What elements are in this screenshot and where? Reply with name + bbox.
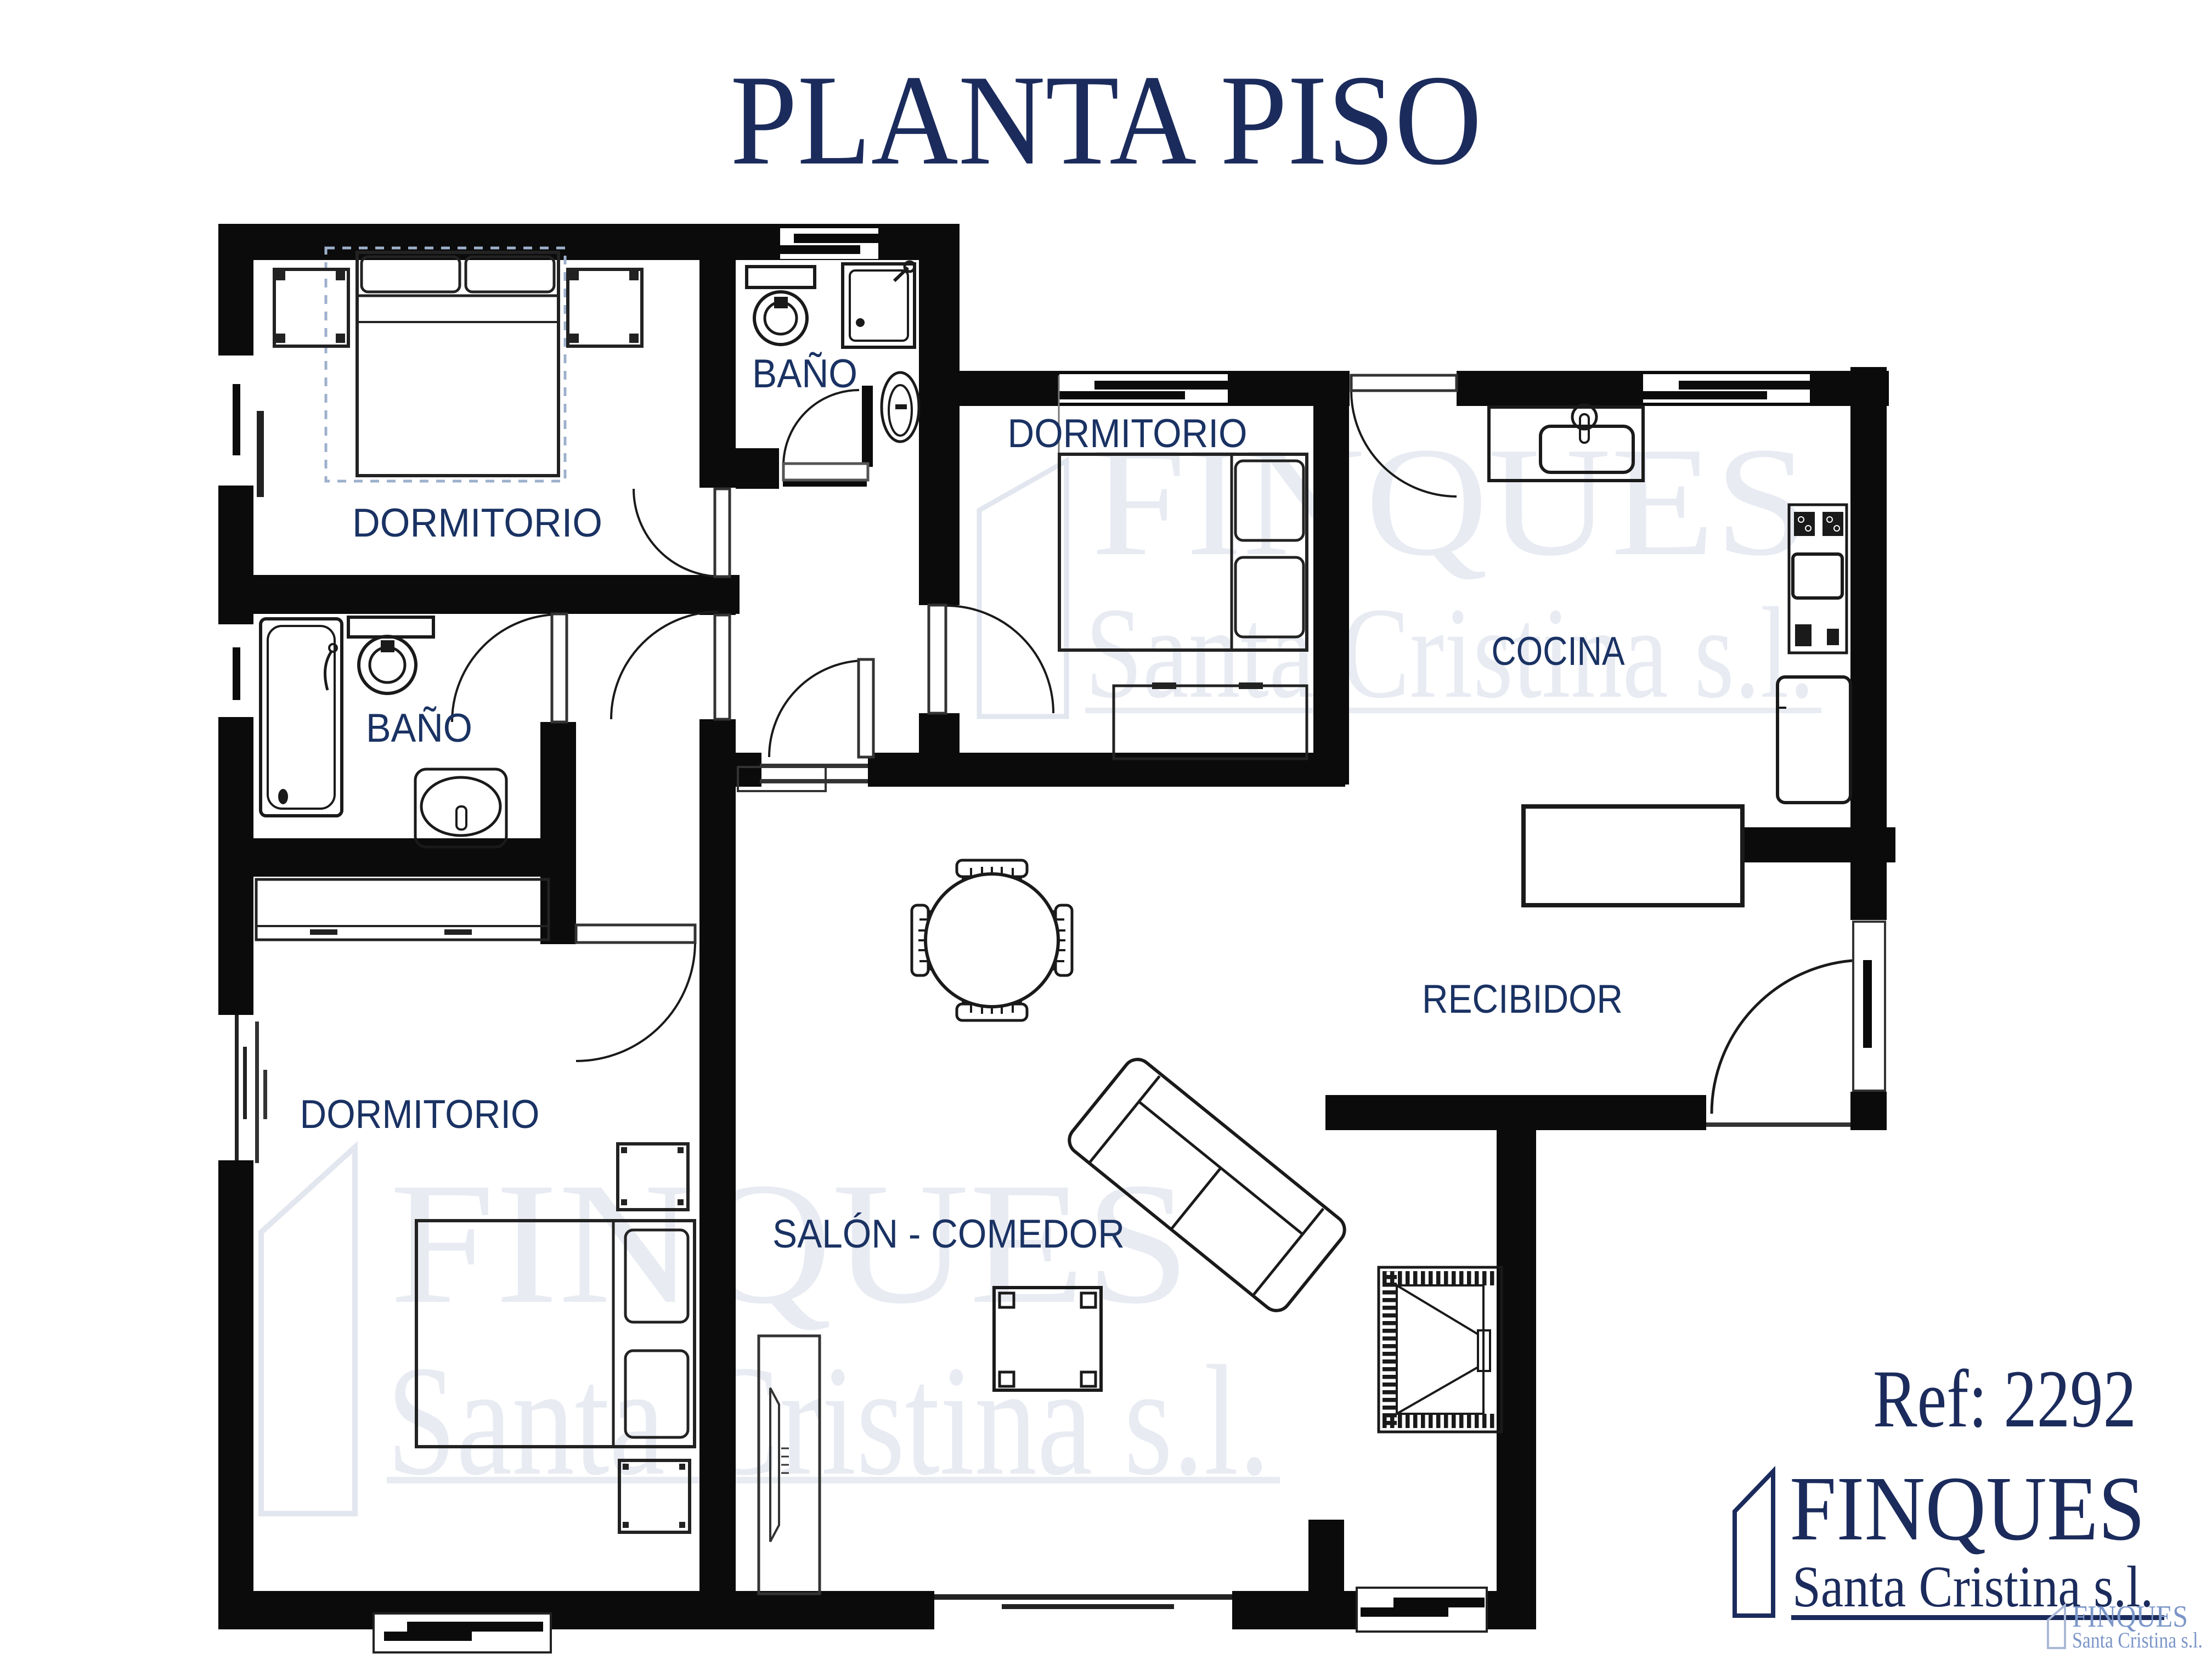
- svg-text:BAÑO: BAÑO: [752, 352, 857, 396]
- svg-text:Santa Cristina s.l.: Santa Cristina s.l.: [2072, 1628, 2203, 1652]
- svg-text:RECIBIDOR: RECIBIDOR: [1422, 977, 1623, 1022]
- svg-text:BAÑO: BAÑO: [366, 706, 472, 751]
- svg-text:PLANTA PISO: PLANTA PISO: [730, 49, 1482, 192]
- svg-text:FINQUES: FINQUES: [1790, 1458, 2145, 1560]
- svg-text:SALÓN - COMEDOR: SALÓN - COMEDOR: [772, 1212, 1125, 1256]
- svg-text:Santa Cristina s.l.: Santa Cristina s.l.: [1085, 581, 1815, 725]
- svg-text:Ref: 2292: Ref: 2292: [1873, 1353, 2136, 1444]
- svg-text:COCINA: COCINA: [1492, 629, 1625, 674]
- svg-text:DORMITORIO: DORMITORIO: [352, 501, 602, 545]
- svg-text:DORMITORIO: DORMITORIO: [1008, 411, 1248, 456]
- svg-text:DORMITORIO: DORMITORIO: [300, 1092, 540, 1137]
